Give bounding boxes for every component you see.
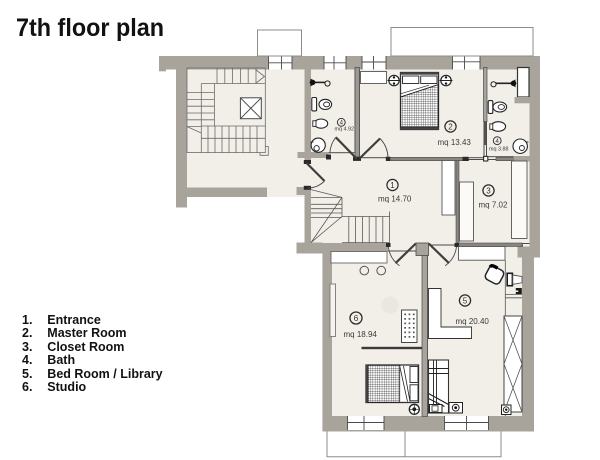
svg-text:5: 5: [463, 297, 468, 306]
svg-text:mq 7.02: mq 7.02: [479, 201, 508, 210]
svg-text:1: 1: [390, 181, 395, 190]
svg-text:mq 4.92: mq 4.92: [335, 126, 354, 132]
svg-text:2: 2: [448, 123, 453, 132]
svg-text:mq 13.43: mq 13.43: [438, 138, 472, 147]
svg-text:mq 20.40: mq 20.40: [456, 317, 490, 326]
svg-text:6: 6: [354, 313, 359, 323]
svg-text:mq 3.88: mq 3.88: [489, 146, 508, 152]
svg-text:mq 14.70: mq 14.70: [378, 195, 412, 204]
svg-text:3: 3: [486, 187, 491, 196]
svg-text:mq 18.94: mq 18.94: [344, 330, 378, 339]
